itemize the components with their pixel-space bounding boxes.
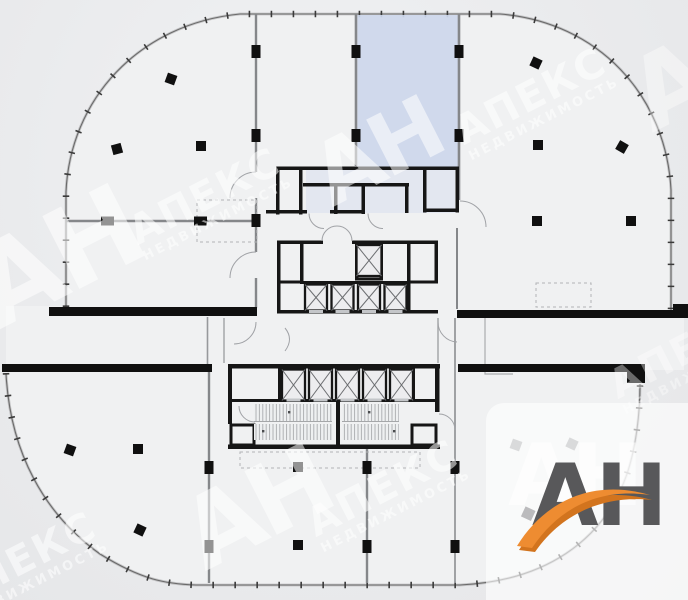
floor-plan-screenshot: АН АН АН АН АПЕКС НЕДВИЖИМОСТЬ АПЕКС НЕД… [0,0,688,600]
logo-panel [486,403,688,600]
